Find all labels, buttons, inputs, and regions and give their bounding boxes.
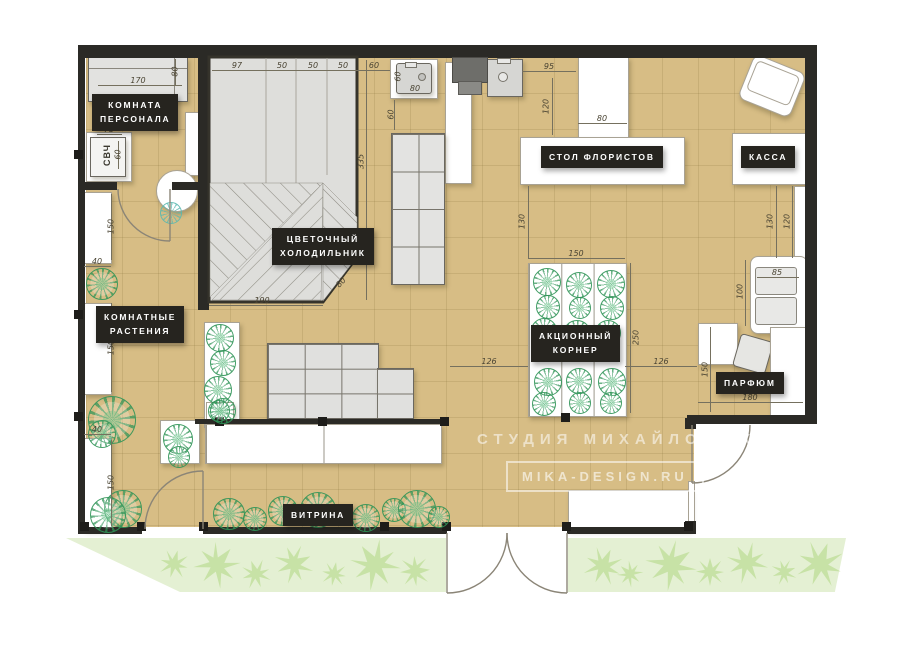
dim-line — [578, 123, 627, 124]
dim-line — [84, 434, 111, 435]
dim-label: 150 — [107, 212, 116, 242]
floor-plan: СВЧ — [0, 0, 910, 653]
plant-icon — [213, 498, 245, 530]
plant-icon — [352, 504, 380, 532]
wall-right — [805, 45, 817, 423]
showcase-counter-right — [568, 490, 691, 530]
label-perfume: ПАРФЮМ — [716, 372, 784, 394]
plant-icon — [208, 400, 230, 422]
dim-line — [552, 78, 553, 135]
dim-line — [792, 186, 793, 258]
main-entrance-left-leaf-arc — [447, 533, 507, 593]
column-marker — [562, 522, 571, 531]
column-marker — [684, 522, 693, 531]
plant-icon — [532, 392, 556, 416]
dim-line — [625, 366, 697, 367]
dim-label: 150 — [561, 249, 591, 258]
dim-label: 40 — [82, 425, 112, 434]
plant-icon — [210, 350, 236, 376]
plant-icon — [206, 324, 234, 352]
plant-icon — [533, 268, 561, 296]
wall-step — [687, 415, 817, 424]
column-marker — [74, 150, 83, 159]
column-marker — [440, 417, 449, 426]
wall-bottom — [203, 527, 447, 534]
dim-line — [212, 70, 390, 71]
plant-icon — [597, 270, 625, 298]
plant-icon — [536, 295, 560, 319]
dim-label: 50 — [298, 61, 328, 70]
dim-label: 120 — [783, 207, 792, 237]
showcase-counter — [205, 424, 442, 464]
column-marker — [80, 522, 89, 531]
label-florist-table: СТОЛ ФЛОРИСТОВ — [541, 146, 663, 168]
dim-label: 126 — [646, 357, 676, 366]
plant-icon — [243, 507, 267, 531]
plant-icon — [600, 296, 624, 320]
dim-label: 97 — [222, 61, 252, 70]
column-marker — [318, 417, 327, 426]
plant-icon — [90, 497, 126, 533]
column-marker — [561, 413, 570, 422]
plant-icon — [428, 506, 450, 528]
dim-line — [528, 258, 625, 259]
label-indoor-plants: КОМНАТНЫЕ РАСТЕНИЯ — [96, 306, 184, 343]
dim-label: 85 — [762, 268, 792, 277]
florist-table-stem — [578, 57, 629, 140]
plant-icon — [86, 268, 118, 300]
column-marker — [199, 522, 208, 531]
column-marker — [74, 412, 83, 421]
plant-icon — [566, 368, 592, 394]
plant-icon — [600, 392, 622, 414]
studio-watermark: СТУДИЯ МИХАЙЛОВЫХ — [477, 431, 756, 448]
dim-label: 60 — [359, 61, 389, 70]
microwave-label: СВЧ — [102, 144, 112, 166]
column-marker — [380, 522, 389, 531]
dim-label: 60 — [387, 100, 396, 130]
dim-label: 50 — [328, 61, 358, 70]
dim-label: 170 — [123, 76, 153, 85]
label-promo-corner: АКЦИОННЫЙ КОРНЕР — [531, 325, 620, 362]
center-table-ext — [377, 368, 414, 419]
dim-label: 250 — [632, 323, 641, 353]
dim-label: 50 — [267, 61, 297, 70]
main-entrance-right-leaf-arc — [507, 533, 567, 593]
dim-line — [522, 71, 576, 72]
dim-label: 130 — [518, 207, 527, 237]
dim-line — [528, 186, 529, 258]
dim-line — [698, 402, 803, 403]
dim-label: 80 — [400, 84, 430, 93]
wall-staff-room — [78, 182, 117, 190]
plant-icon — [160, 202, 182, 224]
dim-line — [710, 327, 711, 412]
dim-line — [776, 186, 777, 258]
dim-label: 130 — [766, 207, 775, 237]
plant-icon — [168, 446, 190, 468]
sink2-icon — [487, 59, 523, 97]
label-flower-fridge: ЦВЕТОЧНЫЙ ХОЛОДИЛЬНИК — [272, 228, 374, 265]
dim-line — [757, 277, 799, 278]
wall-top — [80, 45, 817, 58]
wall-bottom — [567, 527, 695, 534]
center-table — [267, 343, 379, 419]
equipment-block-small — [458, 81, 482, 95]
dim-line — [97, 134, 122, 135]
dim-label: 80 — [171, 57, 180, 87]
shelf-grid — [391, 133, 445, 285]
plant-icon — [566, 272, 592, 298]
wall-jamb — [685, 418, 696, 429]
dim-label: 126 — [474, 357, 504, 366]
wall-staff-room — [172, 182, 209, 190]
dim-line — [745, 260, 746, 326]
dim-label: 100 — [736, 277, 745, 307]
dim-label: 40 — [82, 257, 112, 266]
label-cash-desk: КАССА — [741, 146, 795, 168]
column-marker — [137, 522, 146, 531]
column-marker — [74, 310, 83, 319]
wall-left — [78, 45, 85, 533]
dim-label: 190 — [247, 296, 277, 305]
label-showcase: ВИТРИНА — [283, 504, 353, 526]
dim-label: 120 — [542, 92, 551, 122]
dim-line — [209, 305, 323, 306]
dim-line — [84, 266, 111, 267]
equipment-block — [452, 57, 488, 83]
plant-icon — [569, 392, 591, 414]
dim-line — [450, 366, 528, 367]
dim-line — [98, 85, 182, 86]
wall-interior-vertical — [198, 45, 209, 310]
plant-icon — [569, 297, 591, 319]
dim-label: 95 — [534, 62, 564, 71]
dim-label: 80 — [587, 114, 617, 123]
dim-label: 150 — [107, 468, 116, 498]
dim-label: 60 — [114, 140, 123, 170]
dim-label: 150 — [701, 355, 710, 385]
dim-label: 335 — [357, 147, 366, 177]
site-watermark: MIKA-DESIGN.RU — [506, 461, 704, 492]
dim-label: 60 — [394, 62, 403, 92]
label-staff-room: КОМНАТА ПЕРСОНАЛА — [92, 94, 178, 131]
